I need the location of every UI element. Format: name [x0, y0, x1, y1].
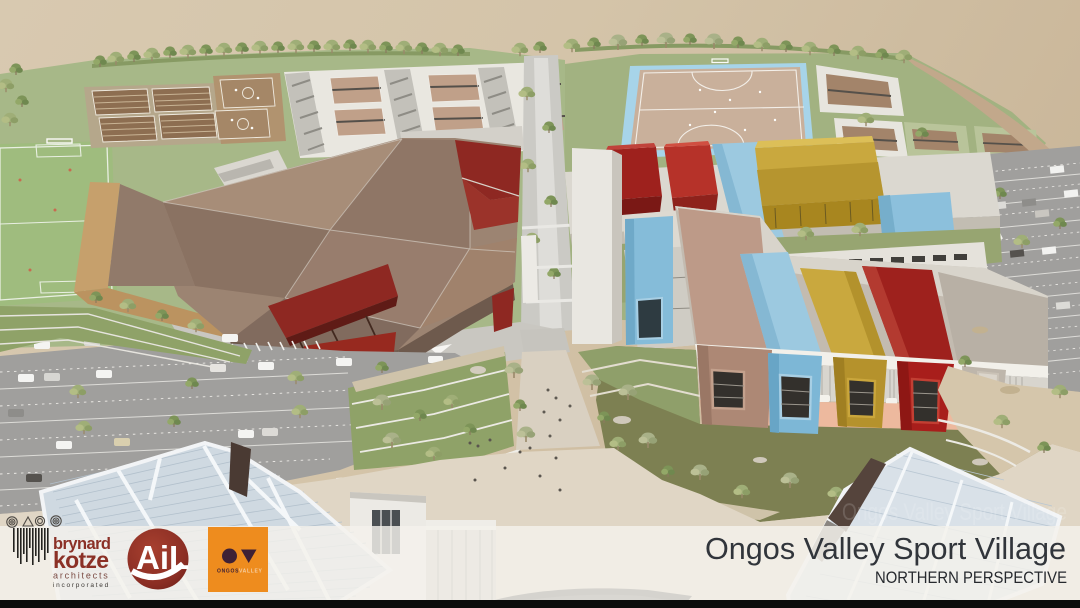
svg-text:Ongos Valley Sport Village: Ongos Valley Sport Village: [705, 531, 1066, 566]
svg-text:architects: architects: [53, 571, 109, 581]
svg-text:ONGOS: ONGOS: [217, 569, 239, 575]
svg-text:NORTHERN PERSPECTIVE: NORTHERN PERSPECTIVE: [875, 569, 1067, 587]
svg-text:incorporated: incorporated: [53, 582, 109, 589]
svg-text:VALLEY: VALLEY: [239, 569, 263, 575]
svg-text:Ongos Valley Sport Village: Ongos Valley Sport Village: [842, 499, 1067, 526]
svg-text:kotze: kotze: [53, 547, 109, 573]
svg-text:AiL: AiL: [136, 539, 189, 576]
